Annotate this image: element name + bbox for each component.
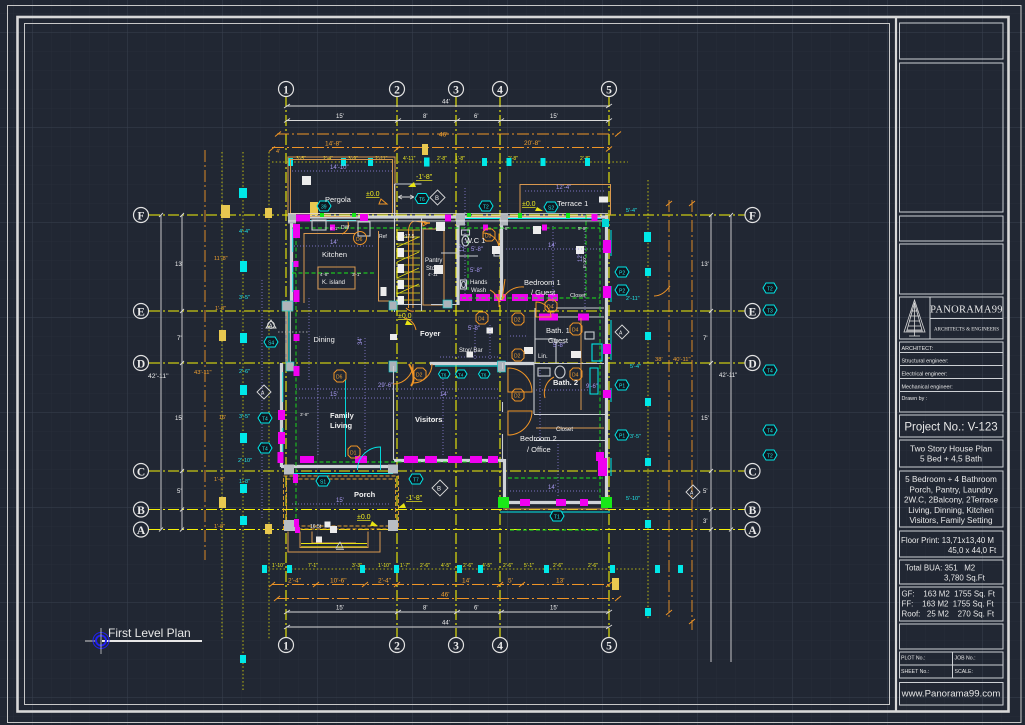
svg-text:A: A [137,525,146,537]
svg-text:11x17.5: 11x17.5 [397,234,415,240]
svg-text:D: D [137,358,145,370]
svg-text:T2: T2 [483,205,489,211]
svg-text:3'-1": 3'-1" [352,272,361,277]
svg-text:P2: P2 [619,271,625,277]
svg-text:Bath. 1: Bath. 1 [546,326,570,335]
svg-text:2'-6": 2'-6" [239,369,250,375]
svg-text:Bath. 2: Bath. 2 [553,378,578,387]
svg-text:SCALE:: SCALE: [955,669,973,675]
svg-text:3: 3 [453,84,459,96]
svg-text:34': 34' [358,337,364,345]
svg-text:15': 15' [336,498,344,504]
svg-text:4'-4": 4'-4" [239,229,250,235]
svg-text:2'-8": 2'-8" [437,156,447,162]
svg-text:Dining: Dining [314,335,335,344]
svg-text:1'-10": 1'-10" [378,563,391,569]
svg-text:Total BUA: 351 M2: Total BUA: 351 M2 [905,564,975,573]
svg-text:4'-11": 4'-11" [403,156,416,162]
svg-text:14': 14' [462,578,470,585]
svg-text:B: B [435,196,439,202]
svg-text:7': 7' [177,336,181,342]
svg-text:Stor/ Bar: Stor/ Bar [459,348,483,354]
svg-text:2'-6": 2'-6" [588,563,598,569]
svg-text:Two Story House Plan: Two Story House Plan [910,444,992,454]
svg-text:B: B [137,505,145,517]
svg-text:5'-8": 5'-8" [578,226,587,231]
svg-text:42'-11": 42'-11" [719,373,737,379]
svg-text:Closet: Closet [570,293,586,299]
svg-text:7'-1": 7'-1" [308,563,318,569]
svg-text:14'-10": 14'-10" [330,165,349,171]
svg-text:4'-8": 4'-8" [320,272,329,277]
svg-text:www.Panorama99.com: www.Panorama99.com [901,689,1001,700]
svg-text:T4: T4 [262,447,268,453]
svg-text:6': 6' [474,606,478,612]
svg-text:5: 5 [606,640,612,652]
svg-text:/ Office: / Office [527,445,551,454]
svg-text:2: 2 [394,640,400,652]
svg-text:14': 14' [330,240,338,246]
svg-text:1'-10": 1'-10" [272,563,285,569]
svg-text:±0.0: ±0.0 [522,201,536,208]
svg-text:40'-11": 40'-11" [673,357,691,363]
svg-text:2'-10": 2'-10" [238,458,252,464]
svg-text:C: C [748,466,756,478]
svg-text:D2: D2 [416,373,423,379]
svg-text:DW: DW [341,225,350,231]
svg-text:Roof: 25 M2 270 Sq. Ft: Roof: 25 M2 270 Sq. Ft [902,610,995,619]
svg-text:8': 8' [423,606,427,612]
svg-text:Porch: Porch [354,490,376,499]
svg-text:44': 44' [442,100,450,106]
svg-text:10'-6": 10'-6" [330,578,347,585]
svg-text:16.5t: 16.5t [310,524,322,530]
svg-text:Mechanical engineer:: Mechanical engineer: [902,385,953,391]
svg-text:T1: T1 [554,515,560,521]
svg-text:13': 13' [175,262,183,268]
svg-text:2W.C, 2Balcony, 2Terrace: 2W.C, 2Balcony, 2Terrace [904,496,998,505]
svg-text:3'-5": 3'-5" [239,414,250,420]
svg-text:2'-6": 2'-6" [553,563,563,569]
svg-text:ARCHITECTS & ENGINEERS: ARCHITECTS & ENGINEERS [934,328,999,333]
svg-text:5'-10": 5'-10" [626,496,640,502]
svg-text:Structural engineer:: Structural engineer: [902,359,949,365]
svg-text:6': 6' [474,114,478,120]
svg-text:4': 4' [276,149,280,155]
svg-text:15': 15' [550,606,558,612]
svg-text:T4: T4 [262,417,268,423]
svg-text:D2: D2 [514,354,521,360]
svg-text:Family: Family [330,411,355,420]
svg-text:A: A [748,525,757,537]
svg-text:4: 4 [497,640,503,652]
svg-text:4: 4 [497,84,503,96]
svg-text:FF: 163 M2 1755 Sq. Ft: FF: 163 M2 1755 Sq. Ft [902,600,995,609]
svg-text:Project No.: V-123: Project No.: V-123 [904,422,997,434]
svg-text:F: F [749,210,756,222]
svg-text:15': 15' [550,114,558,120]
svg-text:4'-5": 4'-5" [482,563,492,569]
svg-text:38': 38' [655,357,663,363]
svg-text:D1: D1 [350,451,357,457]
svg-text:5': 5' [508,578,513,585]
svg-text:2'-11": 2'-11" [626,296,640,302]
svg-text:45,0 x 44,0 Ft: 45,0 x 44,0 Ft [948,546,997,555]
svg-text:3'-5": 3'-5" [239,295,250,301]
svg-text:±0.0: ±0.0 [398,313,412,320]
svg-text:Visitors, Family Setting: Visitors, Family Setting [909,516,993,525]
svg-text:Floor Print: 13,71x13,40 M: Floor Print: 13,71x13,40 M [901,536,994,545]
svg-text:5': 5' [177,489,181,495]
svg-text:B: B [437,487,441,493]
svg-text:D4: D4 [478,317,485,323]
svg-text:5'-8": 5'-8" [471,247,483,253]
svg-text:E: E [137,306,145,318]
svg-text:1'-8": 1'-8" [214,524,225,530]
svg-text:T2: T2 [767,454,773,460]
svg-text:Visitors: Visitors [415,415,442,424]
svg-text:1'-8": 1'-8" [215,306,226,312]
svg-text:T4: T4 [767,429,773,435]
svg-text:39: 39 [321,205,327,211]
svg-text:7'-6": 7'-6" [500,226,509,231]
svg-text:Drawn by :: Drawn by : [902,396,928,402]
svg-text:S4: S4 [268,341,274,347]
svg-text:T6: T6 [481,373,487,378]
svg-text:15': 15' [336,114,344,120]
svg-text:P1: P1 [619,384,625,390]
svg-text:2: 2 [394,84,400,96]
svg-text:3'-8": 3'-8" [300,412,309,417]
svg-text:E: E [749,306,757,318]
svg-text:P2: P2 [619,289,625,295]
svg-text:15': 15' [701,416,709,422]
svg-text:Hands: Hands [470,280,487,286]
svg-text:Store: Store [426,266,441,272]
svg-text:Lin.: Lin. [538,354,548,360]
svg-text:T2: T2 [767,287,773,293]
svg-text:T4: T4 [767,369,773,375]
svg-text:3': 3' [703,519,707,525]
svg-text:14'-8": 14'-8" [325,140,342,147]
svg-text:9'-6": 9'-6" [586,384,598,390]
svg-text:13': 13' [556,578,564,585]
svg-text:F: F [137,210,144,222]
svg-text:Bedroom 1: Bedroom 1 [524,278,561,287]
svg-text:PLOT No.:: PLOT No.: [901,656,925,662]
svg-text:T7: T7 [413,478,419,484]
svg-text:12': 12' [460,244,466,252]
svg-text:43'-11": 43'-11" [194,370,212,376]
svg-text:8': 8' [423,114,427,120]
svg-text:29'-6": 29'-6" [378,383,393,389]
svg-text:46': 46' [439,132,447,139]
svg-text:2'-4": 2'-4" [288,578,302,585]
svg-text:D2: D2 [514,318,521,324]
svg-text:14': 14' [548,485,556,491]
svg-text:14': 14' [440,392,448,398]
svg-text:4'-5": 4'-5" [441,563,451,569]
svg-text:11'-8": 11'-8" [214,256,228,262]
svg-text:SHEET No.:: SHEET No.: [901,669,929,675]
svg-text:Foyer: Foyer [420,329,441,338]
svg-text:D6: D6 [356,237,363,243]
svg-text:15': 15' [175,416,183,422]
svg-text:2'-4": 2'-4" [378,578,392,585]
svg-text:42'-11": 42'-11" [148,373,169,380]
svg-text:S1: S1 [320,480,326,486]
svg-text:13': 13' [701,262,709,268]
svg-text:12': 12' [578,254,584,262]
svg-text:5 Bed + 4,5 Bath: 5 Bed + 4,5 Bath [920,454,982,464]
svg-text:/ Guest: / Guest [531,288,556,297]
svg-text:-1'-8": -1'-8" [406,495,423,502]
svg-text:D6: D6 [336,375,343,381]
svg-text:T6: T6 [441,373,447,378]
svg-text:3: 3 [453,640,459,652]
svg-text:Closet: Closet [556,427,573,433]
svg-text:6'-1": 6'-1" [330,226,339,231]
svg-text:15': 15' [336,606,344,612]
svg-text:2'-6": 2'-6" [463,563,473,569]
svg-text:5'-4": 5'-4" [626,208,637,214]
svg-text:T6: T6 [419,197,425,203]
svg-text:T4: T4 [458,373,464,378]
svg-text:JOB No.:: JOB No.: [955,656,976,662]
svg-text:44': 44' [442,621,450,627]
svg-text:15': 15' [330,392,338,398]
svg-text:4'-11": 4'-11" [428,272,440,277]
svg-text:Bedroom 2: Bedroom 2 [520,434,557,443]
svg-text:Ref: Ref [379,234,387,240]
svg-text:5': 5' [703,489,707,495]
svg-text:16': 16' [219,415,226,421]
svg-text:Wash: Wash [471,288,486,294]
svg-text:Guest: Guest [548,336,569,345]
svg-text:P1: P1 [619,434,625,440]
svg-text:7': 7' [703,336,707,342]
svg-text:D3: D3 [485,234,492,240]
svg-text:-1'-8": -1'-8" [416,174,433,181]
svg-text:ARCHITECT:: ARCHITECT: [902,346,934,352]
svg-text:PANORAMA99: PANORAMA99 [930,305,1003,316]
svg-text:GF: 163 M2 1755 Sq. Ft: GF: 163 M2 1755 Sq. Ft [902,590,996,599]
svg-text:1: 1 [283,640,289,652]
svg-text:±0.0: ±0.0 [366,191,380,198]
svg-text:12'-4": 12'-4" [556,185,571,191]
svg-text:1'-7": 1'-7" [400,563,410,569]
svg-text:W.C 1: W.C 1 [465,236,485,245]
svg-text:1: 1 [283,84,289,96]
svg-text:1'-8": 1'-8" [239,479,250,485]
svg-text:T3: T3 [767,309,773,315]
svg-text:5'-8": 5'-8" [468,326,480,332]
svg-text:First Level Plan: First Level Plan [108,626,191,640]
svg-text:3'-5": 3'-5" [630,434,641,440]
svg-text:2'-6": 2'-6" [503,563,513,569]
svg-text:Electrical engineer:: Electrical engineer: [902,372,948,378]
svg-text:Living: Living [330,421,353,430]
svg-text:3,780 Sq.Ft: 3,780 Sq.Ft [944,574,986,583]
svg-text:Porch, Pantry, Laundry: Porch, Pantry, Laundry [909,485,993,494]
svg-text:20'-8": 20'-8" [524,140,541,147]
svg-text:14': 14' [548,243,556,249]
svg-text:Kitchen: Kitchen [322,250,347,259]
svg-text:D2: D2 [514,394,521,400]
svg-text:5'-1": 5'-1" [524,563,534,569]
svg-text:C: C [137,466,145,478]
svg-text:2'-6": 2'-6" [420,563,430,569]
svg-text:D4: D4 [572,328,579,334]
svg-text:Living, Dinning, Kitchen: Living, Dinning, Kitchen [908,506,994,515]
svg-text:S2: S2 [548,206,554,212]
svg-text:D4: D4 [547,305,554,311]
svg-text:Pergola: Pergola [325,195,352,204]
svg-text:46': 46' [441,592,449,599]
svg-text:1'-8": 1'-8" [214,477,225,483]
svg-text:5: 5 [606,84,612,96]
svg-text:B: B [749,505,757,517]
svg-text:±0.0: ±0.0 [357,514,371,521]
svg-text:1'-8": 1'-8" [455,156,465,162]
svg-text:Pantry: Pantry [425,258,442,264]
svg-text:D: D [748,358,756,370]
svg-text:Terrace 1: Terrace 1 [557,199,588,208]
svg-text:5'-4": 5'-4" [630,364,641,370]
svg-text:5 Bedroom + 4 Bathroom: 5 Bedroom + 4 Bathroom [905,475,997,484]
svg-text:K. island: K. island [322,280,345,286]
svg-text:5'-8": 5'-8" [470,268,482,274]
